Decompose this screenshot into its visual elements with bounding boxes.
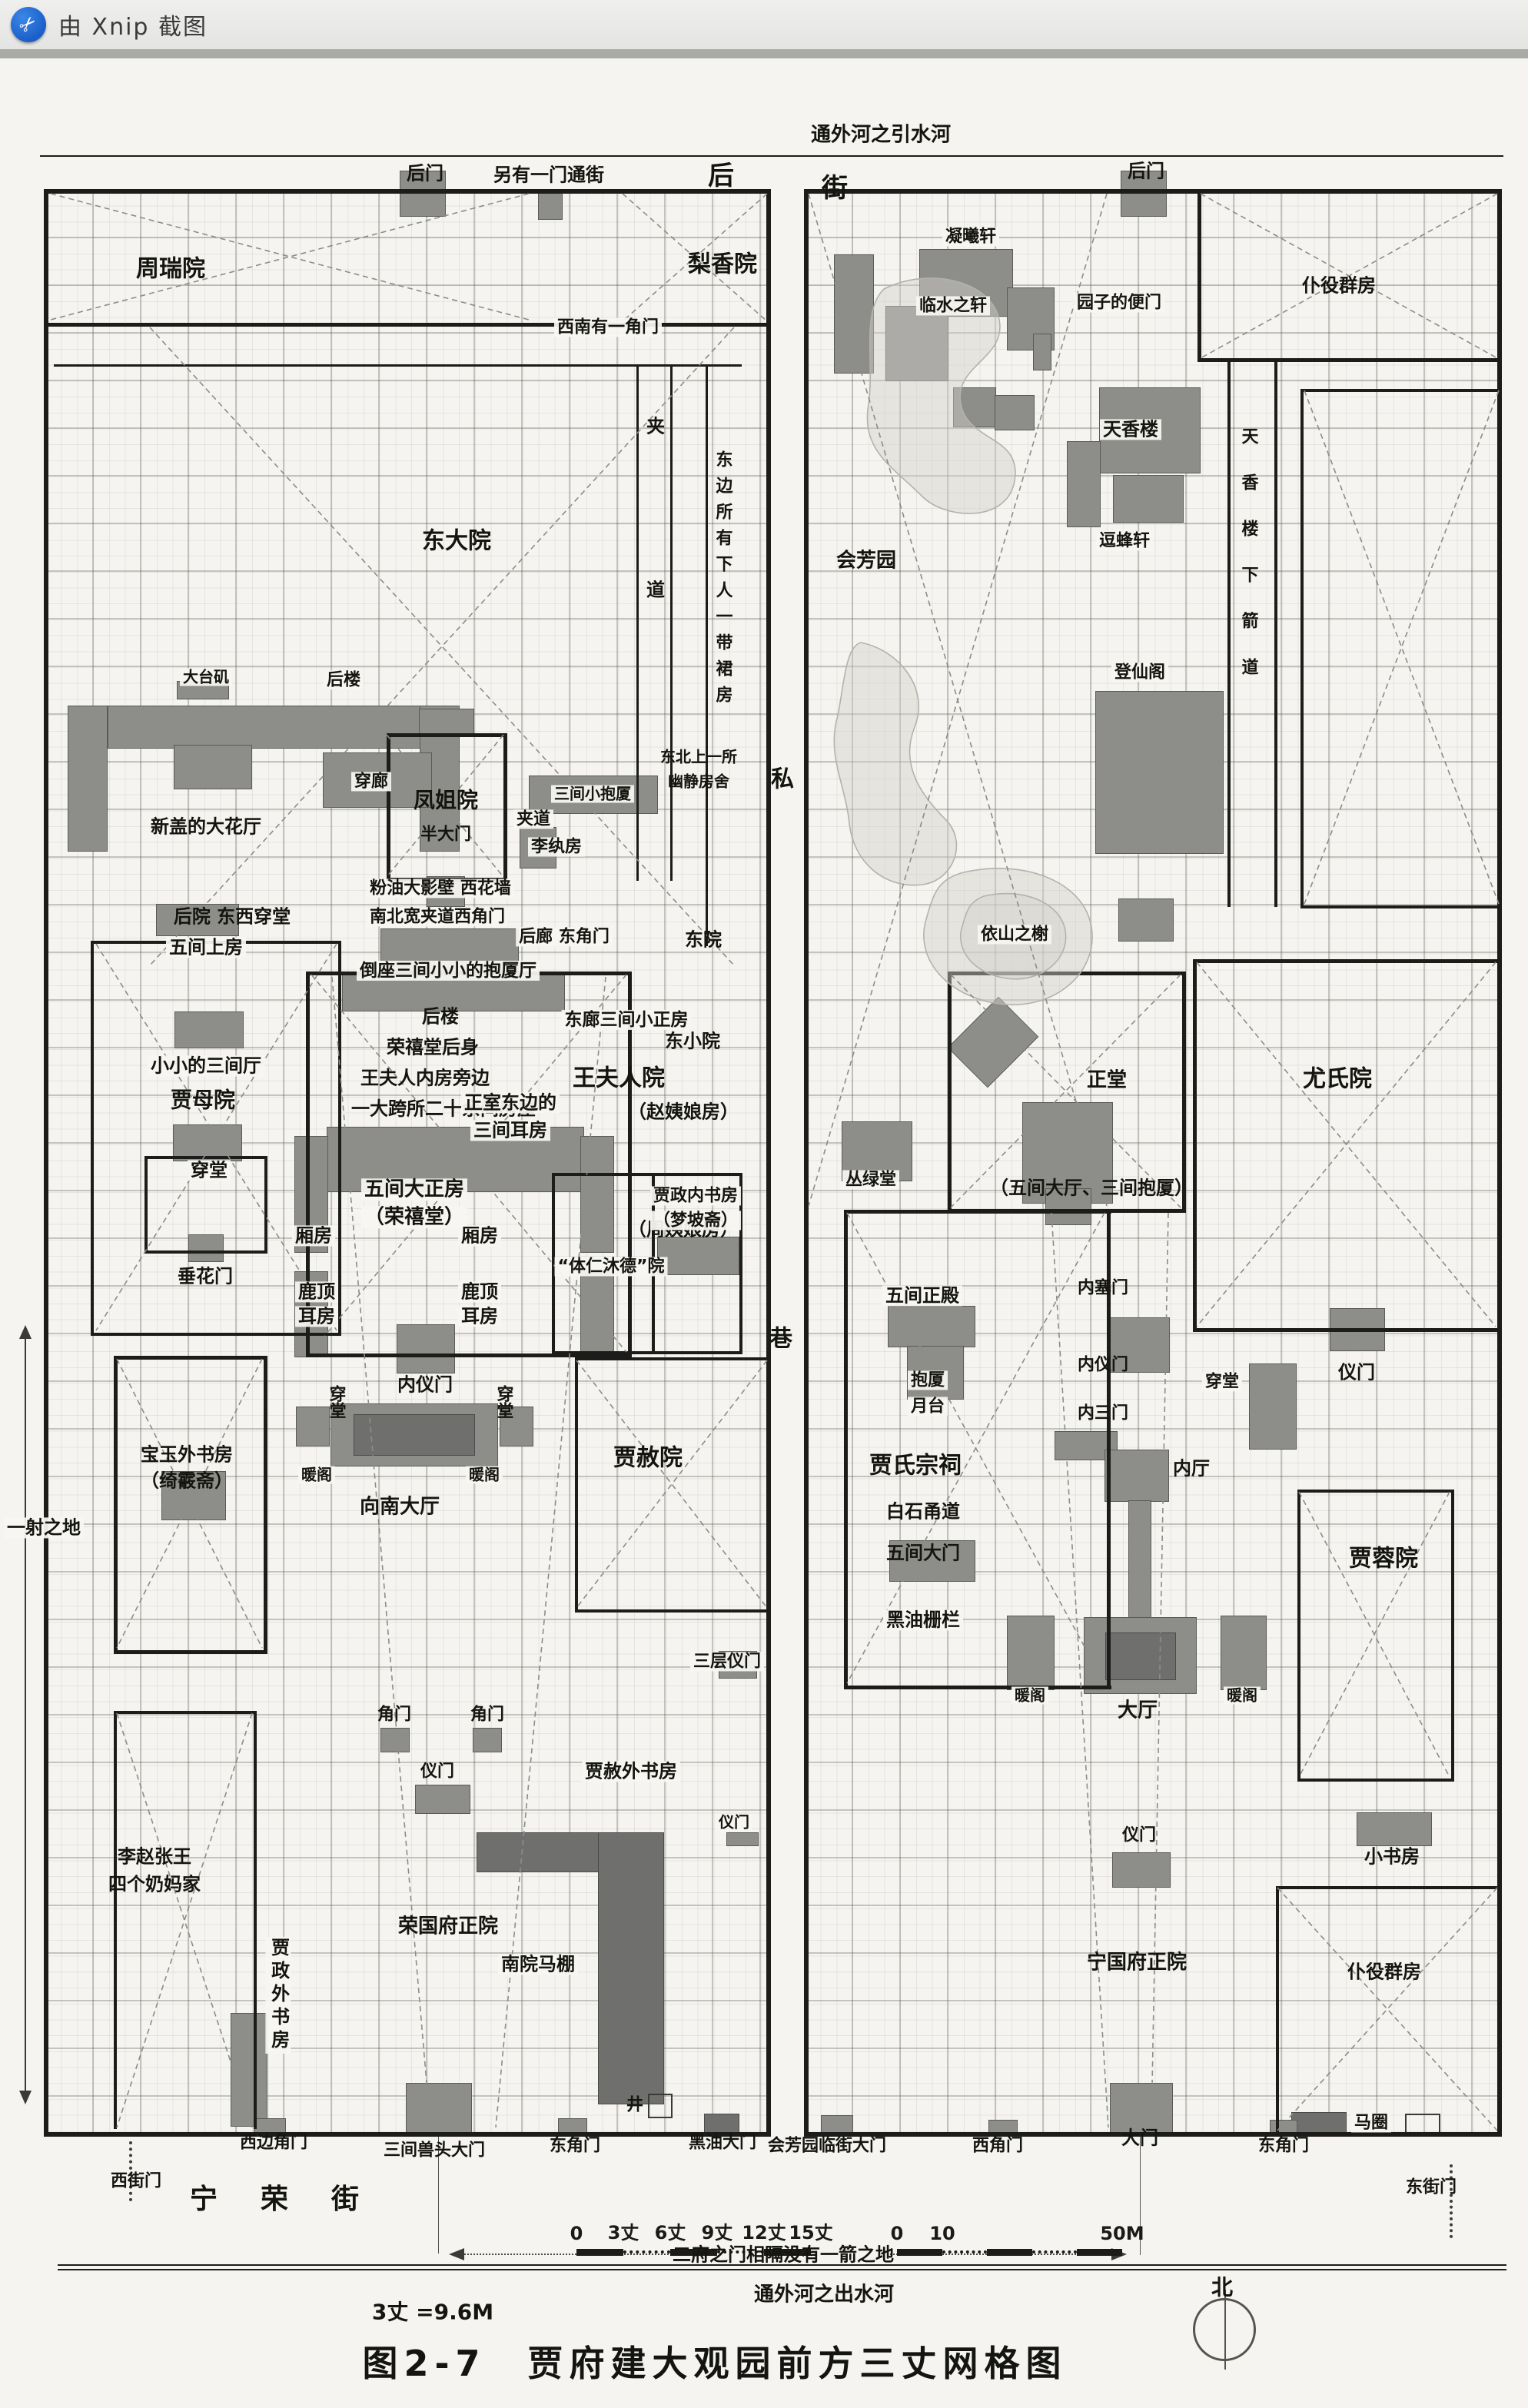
plan-label: 抱厦 [908, 1370, 948, 1390]
plan-label: 黑油大门 [689, 2134, 756, 2151]
plan-label: 另有一门通街 [493, 165, 604, 184]
plan-label: 通外河之引水河 [811, 125, 951, 145]
plan-label: 暖阁 [1011, 1687, 1048, 1705]
plan-label: “体仁沐德”院 [555, 1257, 668, 1276]
plan-label: 内厅 [1173, 1459, 1210, 1478]
plan-label: 天香楼下箭道 [1239, 427, 1257, 704]
plan-label: 后 [708, 163, 734, 191]
plan-label: 穿廊 [351, 772, 391, 791]
plan-label: 小书房 [1364, 1847, 1420, 1866]
plan-label: 后门 [407, 164, 443, 183]
plan-label: 仪门 [1122, 1826, 1156, 1844]
plan-label: 穿堂 [1202, 1372, 1242, 1391]
compass-north-label: 北 [1211, 2276, 1233, 2298]
screenshot-root: ✂ 由 Xnip 截图 通外河之引水河后门另有一门通街后街后门私巷周瑞院梨香院西… [0, 0, 1528, 2408]
plan-label: 会芳园 [836, 550, 896, 571]
scale-note: 3丈 =9.6M [372, 2300, 493, 2323]
plan-label: 仪门 [420, 1762, 454, 1780]
plan-label: 穿堂 [494, 1385, 512, 1419]
plan-label: 一射之地 [4, 1517, 84, 1538]
bar-divider [0, 49, 1528, 58]
plan-label: 大厅 [1118, 1700, 1158, 1721]
plan-label: 西南有一角门 [554, 317, 662, 337]
plan-label: 丛绿堂 [842, 1170, 899, 1189]
plan-label: 耳房 [458, 1306, 501, 1327]
plan-label: 正堂 [1087, 1070, 1127, 1091]
plan-label: 夹 [646, 417, 665, 436]
plan-label: 耳房 [295, 1306, 338, 1327]
plan-label: （绮霰斋） [141, 1471, 233, 1490]
plan-label: 后门 [1128, 161, 1164, 181]
scalebar-segment [987, 2249, 1032, 2256]
compass-icon [1193, 2298, 1256, 2361]
plan-label: 暖阁 [298, 1466, 335, 1484]
plan-label: 内仪门 [397, 1375, 453, 1394]
plan-label: 东街门 [1406, 2178, 1457, 2196]
plan-label: 角门 [377, 1706, 411, 1723]
plan-label: （梦坡斋） [650, 1211, 741, 1230]
plan-label: 三层仪门 [690, 1652, 764, 1671]
plan-label: 暖阁 [466, 1466, 503, 1484]
plan-label: 贾母院 [171, 1088, 235, 1111]
scalebar-tick: 50M [1100, 2223, 1144, 2244]
plan-label: 李赵张王 [118, 1847, 191, 1866]
plan-label: 天香楼 [1100, 419, 1161, 440]
plan-label: 粉油大影壁 西花墙 [367, 879, 514, 898]
plan-label: 东廊三间小正房 [562, 1010, 692, 1030]
plan-label: （荣禧堂） [361, 1206, 467, 1228]
plan-label: 登仙阁 [1111, 663, 1168, 682]
east-street-gate-marker [1450, 2164, 1453, 2238]
plan-label: 角门 [470, 1706, 504, 1723]
plan-label: 夹道 [513, 809, 553, 829]
plan-canvas: 通外河之引水河后门另有一门通街后街后门私巷周瑞院梨香院西南有一角门东大院夹道东边… [0, 0, 1528, 2408]
plan-label: 东小院 [665, 1031, 720, 1051]
plan-label: 贾政外书房 [265, 1937, 291, 2054]
scalebar-segment [897, 2249, 942, 2256]
plan-label: 宁荣街 [190, 2185, 402, 2214]
plan-label: 暖阁 [1224, 1687, 1261, 1705]
plan-label: 后院 东西穿堂 [174, 907, 291, 926]
plan-label: 尤氏院 [1303, 1067, 1372, 1091]
plan-label: 宝玉外书房 [141, 1445, 233, 1464]
plan-label: 正室东边的 [461, 1092, 560, 1113]
plan-label: 白石甬道 [886, 1502, 960, 1521]
plan-label: 东边所有下人一带裙房 [713, 450, 731, 712]
plan-label: 东角门 [550, 2137, 600, 2154]
plan-label: 宁国府正院 [1087, 1952, 1187, 1973]
scissors-icon: ✂ [11, 7, 46, 42]
plan-label: 荣禧堂后身 [387, 1038, 479, 1057]
plan-label: 西街门 [111, 2172, 161, 2190]
plan-label: 巷 [769, 1327, 792, 1351]
arrow-up-icon [19, 1325, 32, 1339]
plan-label: 仆役群房 [1347, 1962, 1421, 1981]
plan-label: 五间上房 [166, 937, 246, 958]
plan-label: 道 [646, 580, 665, 600]
scalebar-tick: 3丈 [608, 2217, 639, 2244]
plan-label: 王夫人院 [573, 1066, 665, 1091]
plan-label: 贾政内书房 [650, 1186, 741, 1205]
plan-label: 东北上一所 [660, 749, 737, 766]
plan-label: 周瑞院 [136, 257, 205, 281]
plan-label: 私 [771, 767, 794, 792]
plan-label: 通外河之出水河 [754, 2284, 894, 2305]
plan-label: 荣国府正院 [398, 1916, 498, 1937]
arrow-left-icon [449, 2248, 464, 2260]
plan-label: 贾赦外书房 [582, 1761, 680, 1782]
scalebar-segment [623, 2250, 670, 2254]
scalebar-tick: 6丈 [655, 2217, 686, 2244]
plan-label: 后楼 [324, 670, 364, 689]
plan-label: 仪门 [1338, 1363, 1375, 1382]
plan-label: 凝曦轩 [942, 227, 999, 246]
plan-label: 东角门 [1258, 2137, 1309, 2154]
plan-label: 园子的便门 [1074, 293, 1164, 312]
plan-label: 五间大正房 [361, 1178, 467, 1201]
plan-label: 三间耳房 [470, 1120, 550, 1141]
plan-label: 井 [626, 2096, 643, 2114]
plan-label: 穿堂 [327, 1385, 344, 1419]
plan-label: 会芳园临街大门 [768, 2137, 886, 2154]
plan-label: 街 [822, 175, 848, 203]
plan-label: 三间小抱厦 [551, 786, 634, 803]
plan-label: 西边角门 [240, 2134, 307, 2151]
scalebar-segment [1077, 2249, 1122, 2256]
plan-label: 月台 [908, 1397, 948, 1416]
distance-arrow-left [461, 2254, 678, 2255]
plan-label: 小小的三间厅 [148, 1055, 264, 1076]
plan-label: 新盖的大花厅 [151, 817, 261, 836]
plan-label: 临水之轩 [916, 296, 990, 315]
plan-label: 王夫人内房旁边 [360, 1068, 490, 1088]
plan-label: 东院 [685, 930, 722, 949]
plan-label: 五间大门 [886, 1543, 960, 1563]
plan-label: 南北宽夹道西角门 [367, 907, 508, 926]
plan-label: 鹿顶 [458, 1281, 501, 1302]
plan-label: （赵姨娘房） [628, 1102, 739, 1121]
xnip-capture-bar: ✂ 由 Xnip 截图 [0, 0, 1528, 49]
capture-attribution-label: 由 Xnip 截图 [58, 8, 208, 42]
plan-label: 南院马棚 [498, 1954, 578, 1975]
plan-label: 内仪门 [1078, 1356, 1128, 1373]
plan-label: 东大院 [422, 529, 491, 553]
plan-label: 梨香院 [688, 252, 757, 277]
scalebar-tick: 10 [929, 2223, 955, 2244]
plan-label: 三间兽头大门 [384, 2141, 485, 2159]
plan-label: 厢房 [292, 1225, 335, 1246]
plan-label: 黑油栅栏 [883, 1609, 963, 1630]
scalebar-tick: 0 [891, 2223, 904, 2244]
scalebar-tick: 12丈 [742, 2217, 786, 2244]
plan-label: 幽静房舍 [668, 774, 729, 790]
plan-label: 贾赦院 [613, 1446, 683, 1470]
plan-label: 李纨房 [528, 837, 585, 856]
plan-label: 穿堂 [188, 1160, 231, 1181]
scalebar-tick: 15丈 [789, 2217, 832, 2244]
plan-label: 后廊 东角门 [516, 927, 613, 946]
plan-label: 贾蓉院 [1349, 1546, 1418, 1571]
plan-label: 凤姐院 [414, 789, 478, 811]
scalebar-segment [942, 2250, 988, 2254]
scalebar-segment [1032, 2250, 1078, 2254]
plan-label: 后楼 [422, 1007, 459, 1026]
plan-label: 大台矶 [180, 669, 232, 686]
figure-caption: 图2-7 贾府建大观园前方三丈网格图 [362, 2336, 1067, 2386]
plan-lines-layer [0, 0, 1528, 2408]
plan-label: 依山之榭 [978, 925, 1051, 944]
plan-label: 鹿顶 [295, 1281, 338, 1302]
plan-label: 大门 [1121, 2128, 1158, 2147]
plan-label: 半大门 [420, 825, 471, 843]
scalebar-segment [576, 2249, 623, 2256]
plan-label: 仆役群房 [1302, 276, 1376, 295]
plan-label: 仪门 [716, 1814, 752, 1832]
plan-label: 垂花门 [178, 1267, 233, 1286]
plan-label: 厢房 [458, 1225, 501, 1246]
plan-label: 五间正殿 [882, 1285, 962, 1306]
plan-label: 二府之门相隔没有一箭之地 [673, 2245, 894, 2264]
dimension-line [25, 1336, 26, 2092]
plan-label: 倒座三间小小的抱厦厅 [357, 961, 540, 981]
arrow-down-icon [19, 2091, 32, 2104]
plan-label: （五间大厅、三间抱厦） [990, 1178, 1193, 1197]
plan-label: 马圈 [1351, 2113, 1391, 2132]
plan-label: 贾氏宗祠 [869, 1453, 962, 1478]
plan-label: 逗蜂轩 [1096, 531, 1153, 550]
plan-label: 西角门 [972, 2137, 1023, 2154]
plan-label: 四个奶妈家 [108, 1875, 201, 1894]
plan-label: 内三门 [1078, 1404, 1128, 1422]
plan-label: 向南大厅 [360, 1496, 440, 1517]
scalebar-tick: 9丈 [702, 2217, 733, 2244]
scalebar-tick: 0 [570, 2223, 583, 2244]
plan-label: 内塞门 [1078, 1279, 1128, 1297]
